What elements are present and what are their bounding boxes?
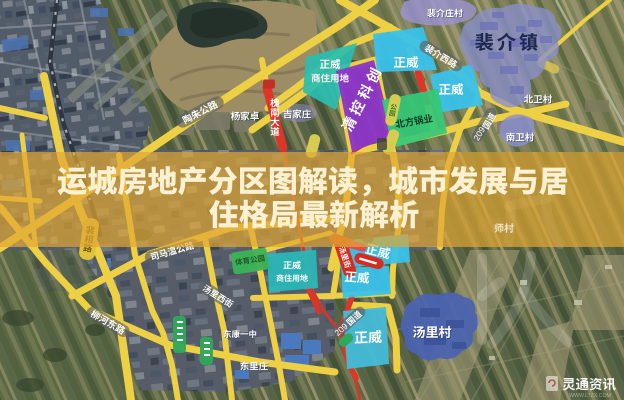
- svg-text:WWW.LTZX.COM: WWW.LTZX.COM: [569, 393, 611, 399]
